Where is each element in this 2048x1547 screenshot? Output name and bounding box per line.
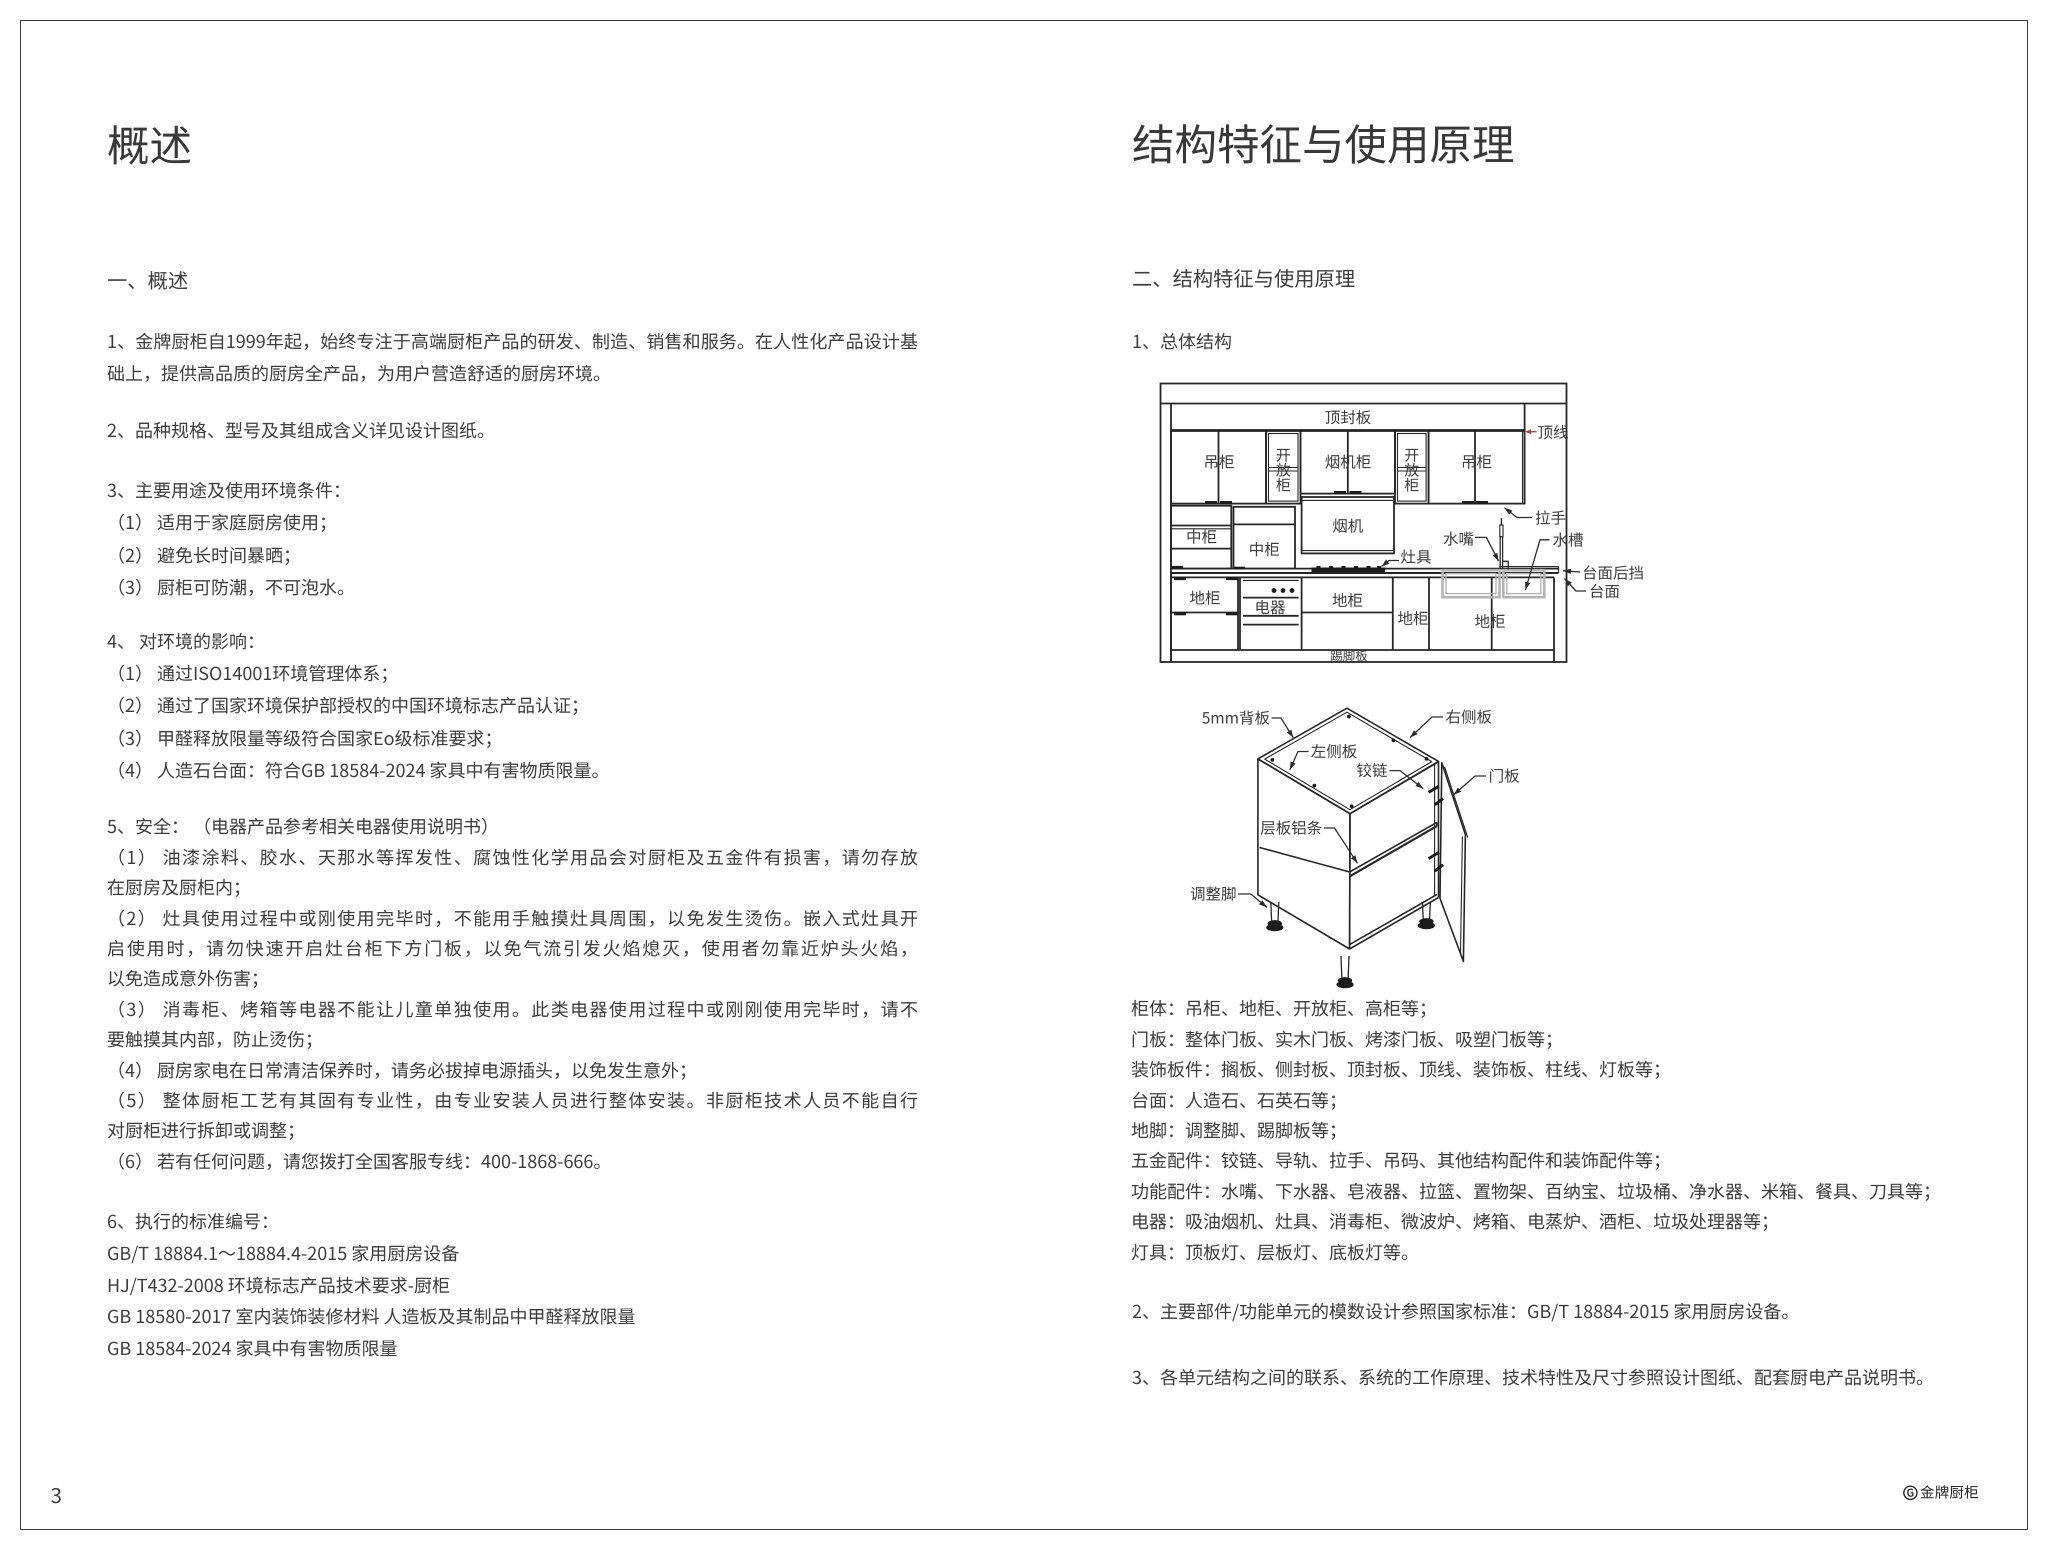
svg-text:吊柜: 吊柜	[1461, 450, 1492, 472]
svg-text:吊柜: 吊柜	[1203, 450, 1234, 472]
svg-text:地柜: 地柜	[1332, 589, 1363, 611]
svg-text:地柜: 地柜	[1474, 610, 1505, 632]
svg-text:右侧板: 右侧板	[1446, 706, 1493, 728]
svg-text:台面: 台面	[1589, 580, 1620, 602]
svg-text:烟机柜: 烟机柜	[1325, 450, 1372, 472]
svg-text:G: G	[1907, 1486, 1914, 1501]
svg-text:柜: 柜	[1404, 474, 1419, 495]
svg-text:门板: 门板	[1489, 765, 1520, 787]
svg-text:水槽: 水槽	[1553, 529, 1584, 551]
svg-text:电器: 电器	[1254, 596, 1286, 618]
svg-text:地柜: 地柜	[1189, 587, 1220, 609]
svg-text:金牌厨柜: 金牌厨柜	[1920, 1482, 1979, 1503]
svg-text:柜: 柜	[1276, 474, 1291, 495]
svg-text:顶封板: 顶封板	[1325, 406, 1372, 428]
svg-text:水嘴: 水嘴	[1443, 528, 1474, 550]
svg-text:5mm背板: 5mm背板	[1202, 707, 1270, 729]
svg-text:中柜: 中柜	[1186, 525, 1217, 547]
svg-text:层板铝条: 层板铝条	[1260, 817, 1322, 839]
svg-text:调整脚: 调整脚	[1190, 883, 1237, 905]
svg-text:地柜: 地柜	[1397, 607, 1428, 629]
svg-text:灶具: 灶具	[1401, 545, 1432, 567]
svg-text:顶线: 顶线	[1538, 421, 1569, 443]
svg-text:踢脚板: 踢脚板	[1330, 646, 1368, 665]
svg-text:中柜: 中柜	[1249, 538, 1280, 560]
svg-text:左侧板: 左侧板	[1311, 740, 1358, 762]
svg-text:铰链: 铰链	[1356, 759, 1388, 781]
svg-text:烟机: 烟机	[1332, 514, 1364, 536]
svg-text:拉手: 拉手	[1535, 506, 1566, 528]
